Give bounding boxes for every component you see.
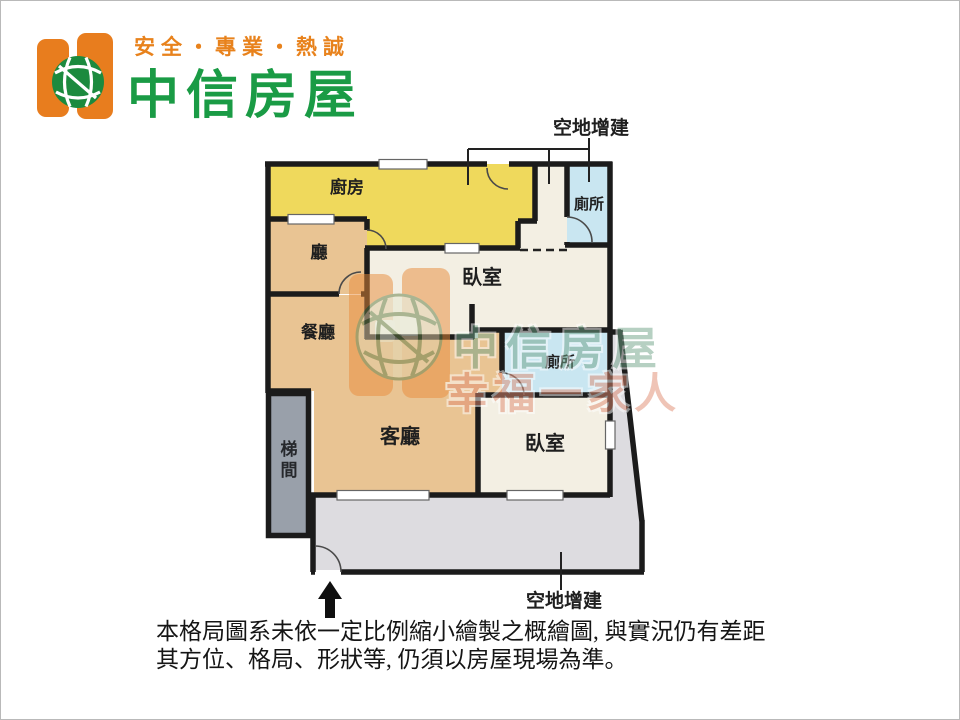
label-addition-top: 空地增建 (553, 119, 629, 140)
disclaimer-line-2: 其方位、格局、形狀等, 仍須以房屋現場為準。 (156, 646, 766, 674)
disclaimer-text: 本格局圖系未依一定比例縮小繪製之概繪圖, 與實況仍有差距 其方位、格局、形狀等,… (156, 618, 766, 674)
label-living: 客廳 (380, 426, 420, 448)
label-toilet-mid: 廁所 (545, 355, 575, 372)
entrance-arrow-icon (318, 581, 342, 618)
label-hall: 廳 (311, 244, 328, 263)
label-addition-bottom: 空地增建 (526, 592, 602, 613)
label-toilet-top: 廁所 (574, 197, 604, 214)
label-kitchen: 廚房 (330, 179, 364, 198)
label-dining: 餐廳 (301, 324, 335, 343)
label-bedroom-top: 臥室 (462, 267, 502, 289)
label-stairwell: 梯間 (279, 439, 299, 482)
floorplan-drawing (1, 1, 959, 719)
label-bedroom-bottom: 臥室 (525, 433, 565, 455)
floorplan-page: 安全・專業・熱誠 中信房屋 廚房 (0, 0, 960, 720)
disclaimer-line-1: 本格局圖系未依一定比例縮小繪製之概繪圖, 與實況仍有差距 (156, 618, 766, 646)
